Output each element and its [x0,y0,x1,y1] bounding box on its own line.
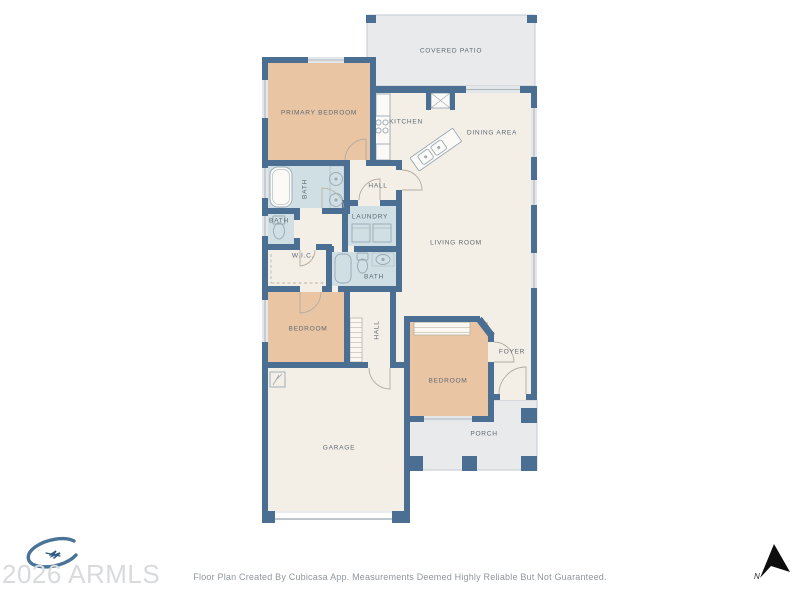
floor-plan-drawing [0,0,800,600]
patio-post [366,15,376,23]
room-label-foyer: FOYER [499,349,525,356]
room-label-bedroom-left: BEDROOM [289,326,328,333]
north-arrow: N [748,540,798,592]
porch-pillar [521,456,537,471]
room-label-bath-second: BATH [364,274,384,281]
second-bath-floor [332,252,396,286]
room-label-kitchen: KITCHEN [389,119,423,126]
room-label-laundry: LAUNDRY [352,214,388,221]
room-label-garage: GARAGE [323,445,355,452]
room-label-primary-bath: BATH [302,179,309,199]
patio-post [527,15,537,23]
bedroom-right-floor [410,322,488,416]
porch-pillar [521,408,537,423]
room-label-wic: W.I.C. [292,253,314,260]
footer-disclaimer: Floor Plan Created By Cubicasa App. Meas… [0,572,800,582]
room-label-living-room: LIVING ROOM [430,240,482,247]
laundry-floor [348,206,396,246]
room-label-bedroom-right: BEDROOM [429,378,468,385]
north-arrow-label: N [754,572,760,581]
room-label-hall-upper: HALL [368,183,387,190]
room-label-hall-lower: HALL [374,320,381,339]
room-label-covered-patio: COVERED PATIO [420,48,482,55]
room-label-bath-small: BATH [269,218,289,225]
bedroom-right-closet [414,320,470,335]
room-label-porch: PORCH [470,431,497,438]
room-label-dining-area: DINING AREA [467,130,517,137]
porch-pillar [408,456,423,471]
hall-closet [350,318,362,362]
porch-pillar [462,456,477,471]
room-label-primary-bedroom: PRIMARY BEDROOM [281,110,357,117]
floor-plan-canvas: COVERED PATIO PRIMARY BEDROOM KITCHEN DI… [0,0,800,600]
garage-door-opening [275,511,392,521]
